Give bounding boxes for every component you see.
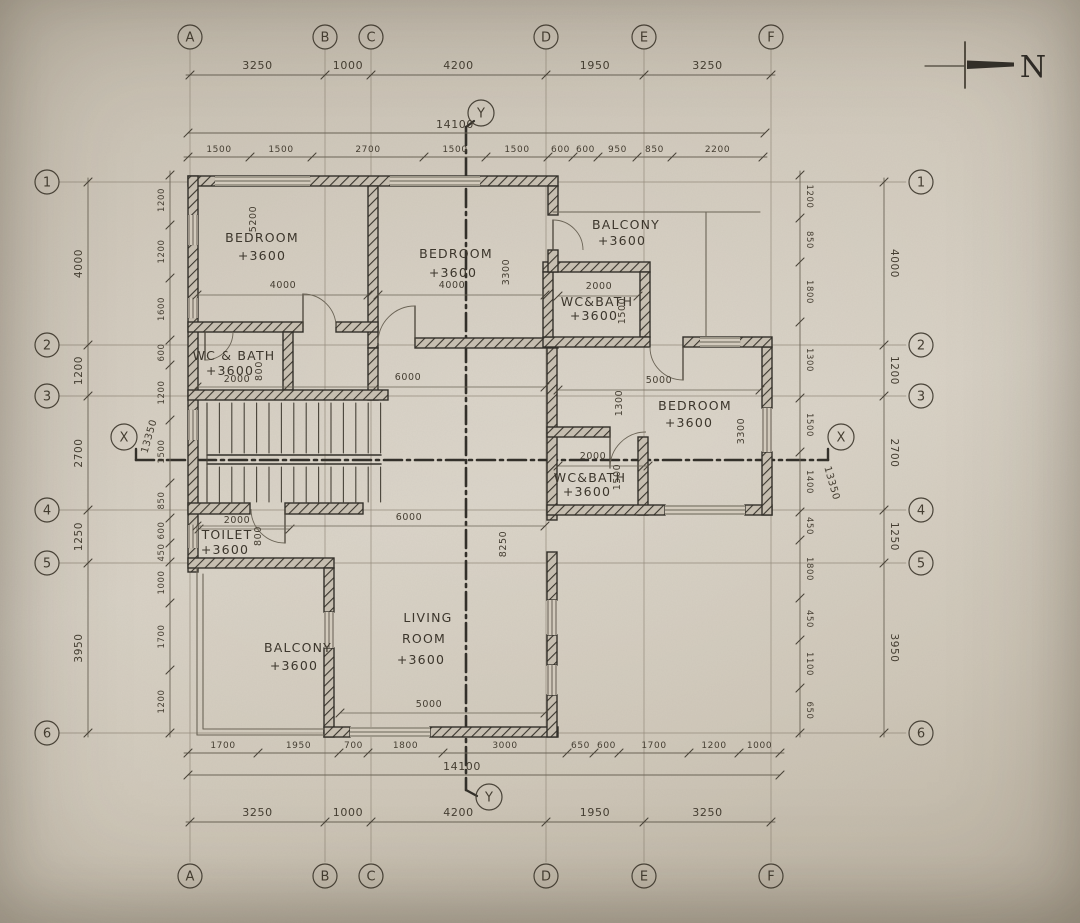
dim-or-label-text: 1800	[393, 741, 418, 751]
dim-or-label-text: 1000	[157, 570, 167, 594]
dim-or-label-text: WC & BATH	[193, 348, 276, 363]
dim-or-label-text: BEDROOM	[658, 398, 732, 413]
dim-or-label-text: 2200	[705, 145, 730, 155]
dim-or-label-text: 1200	[157, 689, 167, 713]
dim-or-label-text: BALCONY	[264, 640, 332, 655]
dim-or-label-text: +3600	[201, 542, 249, 557]
wall-segment	[548, 186, 558, 215]
dim-or-label-text: 14100	[443, 760, 481, 773]
dim-or-label-text: 1500	[442, 145, 467, 155]
dim-or-label-text: 3000	[492, 741, 517, 751]
dim-or-label-text: 850	[645, 145, 664, 155]
wall-segment	[762, 347, 772, 408]
dim-or-label-text: B	[321, 31, 330, 46]
dim-or-label-text: 1300	[804, 348, 814, 372]
dim-or-label-text: 1700	[157, 624, 167, 648]
dim-or-label-text: 5000	[416, 699, 443, 710]
dim-or-label-text: 1500	[504, 145, 529, 155]
dim-or-label-text: BALCONY	[592, 217, 660, 232]
dim-or-label-text: 1300	[614, 390, 625, 417]
dim-or-label-text: 600	[597, 741, 616, 751]
dim-or-label-text: B	[321, 870, 330, 885]
dim-or-label-text: LIVING	[403, 610, 452, 625]
wall-segment	[638, 437, 648, 515]
wall-segment	[324, 727, 350, 737]
dim-or-label-text: 1	[43, 176, 51, 191]
dim-or-label-text: 6000	[395, 372, 422, 383]
dim-or-label-text: 3300	[501, 259, 512, 286]
dim-or-label-text: 3950	[73, 633, 85, 662]
dim-or-label-text: 450	[804, 610, 814, 628]
dim-or-label-text: 4000	[888, 249, 900, 278]
dim-or-label-text: 4	[43, 504, 51, 519]
dim-or-label-text: 1	[917, 176, 925, 191]
dim-or-label-text: 1500	[804, 413, 814, 437]
dim-or-label-text: F	[767, 870, 774, 885]
wall-segment	[547, 427, 610, 437]
dim-or-label-text: Y	[476, 107, 485, 122]
dim-or-label-text: 1800	[804, 280, 814, 304]
wall-segment	[324, 568, 334, 612]
dim-or-label-text: +3600	[598, 233, 646, 248]
dim-or-label-text: A	[186, 870, 195, 885]
wall-segment	[188, 322, 303, 332]
wall-segment	[188, 558, 334, 568]
floor-plan-sheet: AABBCCDDEEFF112233445566XXYY133501335032…	[0, 0, 1080, 923]
dim-or-label-text: 1250	[73, 522, 85, 551]
floor-plan-canvas: AABBCCDDEEFF112233445566XXYY133501335032…	[0, 0, 1080, 923]
dim-or-label-text: 1000	[333, 59, 363, 72]
dim-or-label-text: 3300	[736, 418, 747, 445]
dim-or-label-text: WC&BATH	[554, 470, 626, 485]
dim-or-label-text: +3600	[270, 658, 318, 673]
dim-or-label-text: 1700	[210, 741, 235, 751]
dim-or-label-text: 1200	[804, 184, 814, 208]
dim-or-label-text: 600	[157, 521, 167, 539]
dim-or-label-text: 1000	[747, 741, 772, 751]
dim-or-label-text: X	[120, 431, 129, 446]
dim-or-label-text: 3250	[692, 806, 722, 819]
dim-or-label-text: 1950	[286, 741, 311, 751]
dim-or-label-text: 1200	[157, 188, 167, 212]
wall-segment	[548, 250, 558, 272]
dim-or-label-text: 2700	[73, 438, 85, 467]
dim-or-label-text: ROOM	[402, 631, 446, 646]
wall-segment	[543, 272, 553, 337]
dim-or-label-text: 5000	[646, 375, 673, 386]
wall-segment	[543, 262, 650, 272]
dim-or-label-text: 3	[917, 390, 925, 405]
dim-or-label-text: 600	[157, 343, 167, 361]
dim-or-label-text: 600	[551, 145, 570, 155]
dim-or-label-text: 950	[608, 145, 627, 155]
wall-segment	[547, 552, 557, 600]
dim-or-label-text: 600	[576, 145, 595, 155]
dim-or-label-text: 2700	[355, 145, 380, 155]
dim-or-label-text: +3600	[429, 265, 477, 280]
dim-or-label-text: BEDROOM	[419, 246, 493, 261]
dim-or-label-text: +3600	[397, 652, 445, 667]
dim-or-label-text: 1500	[206, 145, 231, 155]
dim-or-label-text: 850	[804, 231, 814, 249]
dim-or-label-text: 5200	[248, 206, 259, 233]
wall-segment	[188, 390, 388, 400]
dim-or-label-text: 3950	[888, 633, 900, 662]
wall-segment	[285, 503, 363, 514]
dim-or-label-text: E	[640, 870, 648, 885]
dim-or-label-text: 1200	[157, 239, 167, 263]
dim-or-label-text: C	[366, 31, 375, 46]
dim-or-label-text: 1600	[157, 297, 167, 321]
dim-or-label-text: 1500	[268, 145, 293, 155]
dim-or-label-text: 1400	[804, 470, 814, 494]
dim-or-label-text: 1800	[804, 557, 814, 581]
wall-segment	[543, 337, 650, 347]
dim-or-label-text: 1200	[888, 356, 900, 385]
dim-or-label-text: 1200	[157, 380, 167, 404]
dim-or-label-text: 4000	[439, 280, 466, 291]
dim-or-label-text: +3600	[206, 363, 254, 378]
dim-or-label-text: F	[767, 31, 774, 46]
dim-or-label-text: +3600	[563, 484, 611, 499]
wall-segment	[336, 322, 378, 332]
dim-or-label-text: 850	[157, 491, 167, 509]
room-label: TOILET+3600	[201, 527, 253, 557]
dim-or-label-text: 1250	[888, 522, 900, 551]
dim-or-label-text: 2000	[580, 451, 607, 462]
dim-or-label-text: 2000	[224, 515, 251, 526]
dim-or-label-text: 800	[253, 526, 264, 546]
dim-or-label-text: 3	[43, 390, 51, 405]
dim-or-label-text: 700	[344, 741, 363, 751]
wall-segment	[547, 505, 665, 515]
wall-segment	[762, 452, 772, 515]
dim-or-label-text: 1950	[580, 806, 610, 819]
dim-or-label-text: 2	[917, 339, 925, 354]
dim-or-label-text: 2700	[888, 438, 900, 467]
wall-segment	[415, 338, 558, 348]
wall-segment	[640, 272, 650, 337]
dim-or-label-text: 14100	[436, 118, 474, 131]
wall-segment	[547, 695, 557, 737]
dim-or-label-text: 8250	[498, 531, 509, 558]
dim-or-label-text: BEDROOM	[225, 230, 299, 245]
dim-or-label-text: 1200	[701, 741, 726, 751]
dim-or-label-text: 5	[917, 557, 925, 572]
dim-or-label-text: 4200	[443, 806, 473, 819]
dim-or-label-text: 1200	[73, 356, 85, 385]
dim-or-label-text: 650	[804, 701, 814, 719]
dim-or-label-text: 4200	[443, 59, 473, 72]
dim-or-label-text: 650	[571, 741, 590, 751]
dim-or-label-text: 1950	[580, 59, 610, 72]
wall-segment	[547, 635, 557, 665]
dim-or-label-text: WC&BATH	[561, 294, 633, 309]
dim-or-label-text: 2	[43, 339, 51, 354]
dim-or-label-text: 1100	[804, 652, 814, 676]
dim-or-label-text: D	[541, 31, 551, 46]
dim-or-label-text: 4	[917, 504, 925, 519]
wall-segment	[188, 503, 250, 514]
dim-or-label-text: 450	[157, 543, 167, 561]
dim-or-label-text: 1500	[157, 439, 167, 463]
wall-segment	[430, 727, 558, 737]
dim-or-label-text: C	[366, 870, 375, 885]
dim-or-label-text: TOILET	[201, 527, 253, 542]
dim-or-label-text: A	[186, 31, 195, 46]
dim-or-label-text: X	[837, 431, 846, 446]
dim-or-label-text: 1700	[641, 741, 666, 751]
wall-segment	[283, 332, 293, 390]
dim-or-label-text: +3600	[570, 308, 618, 323]
dim-or-label-text: 3250	[692, 59, 722, 72]
dim-or-label-text: E	[640, 31, 648, 46]
dim-or-label-text: N	[1020, 50, 1046, 85]
dim-or-label-text: 3250	[242, 59, 272, 72]
dim-or-label-text: Y	[484, 791, 493, 806]
dim-or-label-text: 6000	[396, 512, 423, 523]
dim-or-label-text: 800	[254, 361, 265, 381]
dim-or-label-text: 4000	[73, 249, 85, 278]
dim-or-label-text: 4000	[270, 280, 297, 291]
dim-or-label-text: 3250	[242, 806, 272, 819]
dim-or-label-text: 1000	[333, 806, 363, 819]
room-label: LIVINGROOM+3600	[397, 610, 453, 667]
dim-or-label-text: 450	[804, 517, 814, 535]
dim-or-label-text: +3600	[665, 415, 713, 430]
dim-or-label-text: 6	[917, 727, 925, 742]
dim-or-label-text: +3600	[238, 248, 286, 263]
dim-or-label-text: D	[541, 870, 551, 885]
wall-segment	[324, 648, 334, 737]
dim-or-label-text: 2000	[586, 281, 613, 292]
dim-or-label-text: 5	[43, 557, 51, 572]
dim-or-label-text: 6	[43, 727, 51, 742]
